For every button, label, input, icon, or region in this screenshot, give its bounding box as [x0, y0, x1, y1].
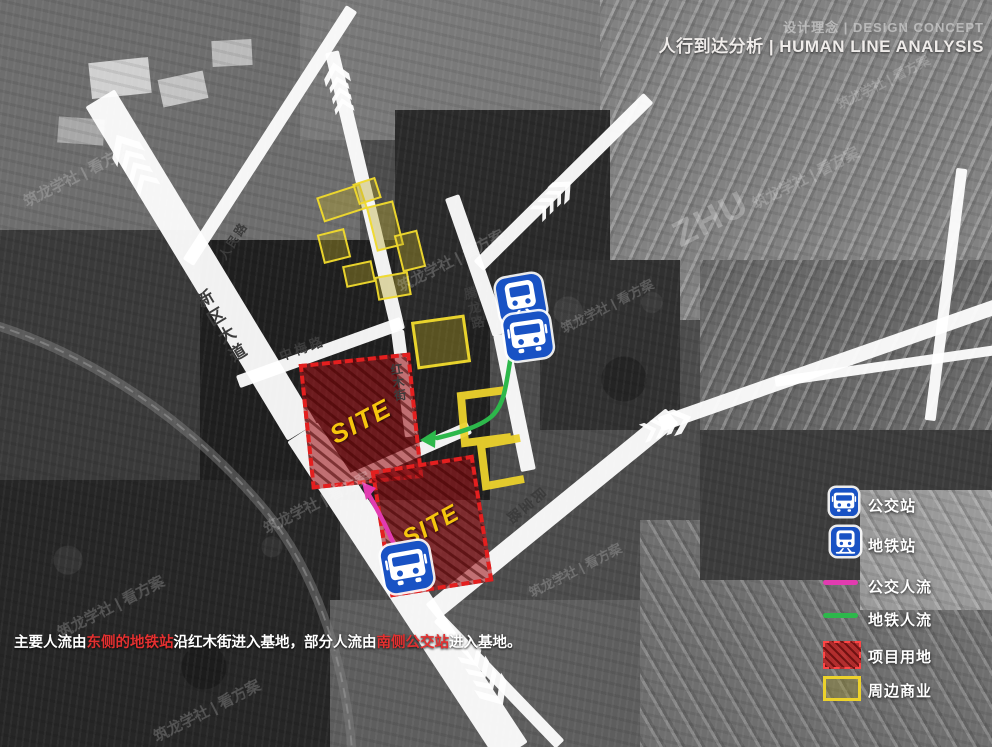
title-human-line-analysis: 人行到达分析 | HUMAN LINE ANALYSIS: [659, 36, 984, 57]
legend-metro-station-icon: [831, 527, 860, 556]
chevron-marker-northeast: [528, 173, 580, 224]
commercial-bracket: [461, 390, 524, 486]
human-line-analysis-map: 新区大道 人民路 中梅路 红木街 腾龙路 民宝路 SITE SITE: [0, 0, 992, 747]
legend-commercial-swatch: [823, 676, 861, 701]
metro-flow-arrowhead: [420, 430, 436, 448]
legend-project-site-swatch: [823, 641, 861, 669]
chevron-marker-south: [454, 642, 516, 714]
legend-metro-flow-swatch: [823, 613, 858, 618]
annotation-highlight-metro: 东侧的地铁站: [87, 635, 174, 651]
chevron-marker-north: [321, 60, 358, 116]
chevron-marker-northwest: [103, 127, 164, 199]
chevron-marker-east: [638, 405, 696, 446]
bus-station-icon: [502, 310, 554, 362]
legend-bus-flow-swatch: [823, 580, 858, 585]
legend-label-metro-flow: 地铁人流: [868, 609, 932, 630]
annotation-text: 主要人流由: [14, 635, 87, 651]
page-title: 设计理念 | DESIGN CONCEPT 人行到达分析 | HUMAN LIN…: [659, 20, 984, 58]
legend-label-commercial: 周边商业: [868, 680, 932, 701]
legend-label-bus-station: 公交站: [868, 495, 916, 516]
annotation-text: 沿红木街进入基地，部分人流由: [174, 635, 377, 651]
legend-label-metro-station: 地铁站: [868, 535, 916, 556]
legend-bus-station-icon: [830, 488, 858, 516]
legend-label-bus-flow: 公交人流: [868, 576, 932, 597]
title-design-concept: 设计理念 | DESIGN CONCEPT: [659, 20, 984, 36]
annotation-text: 进入基地。: [449, 635, 522, 651]
analysis-annotation: 主要人流由东侧的地铁站沿红木街进入基地，部分人流由南侧公交站进入基地。: [14, 631, 522, 652]
legend-label-project-site: 项目用地: [868, 646, 932, 667]
bus-station-icon: [379, 539, 435, 595]
annotation-highlight-bus: 南侧公交站: [377, 635, 450, 651]
